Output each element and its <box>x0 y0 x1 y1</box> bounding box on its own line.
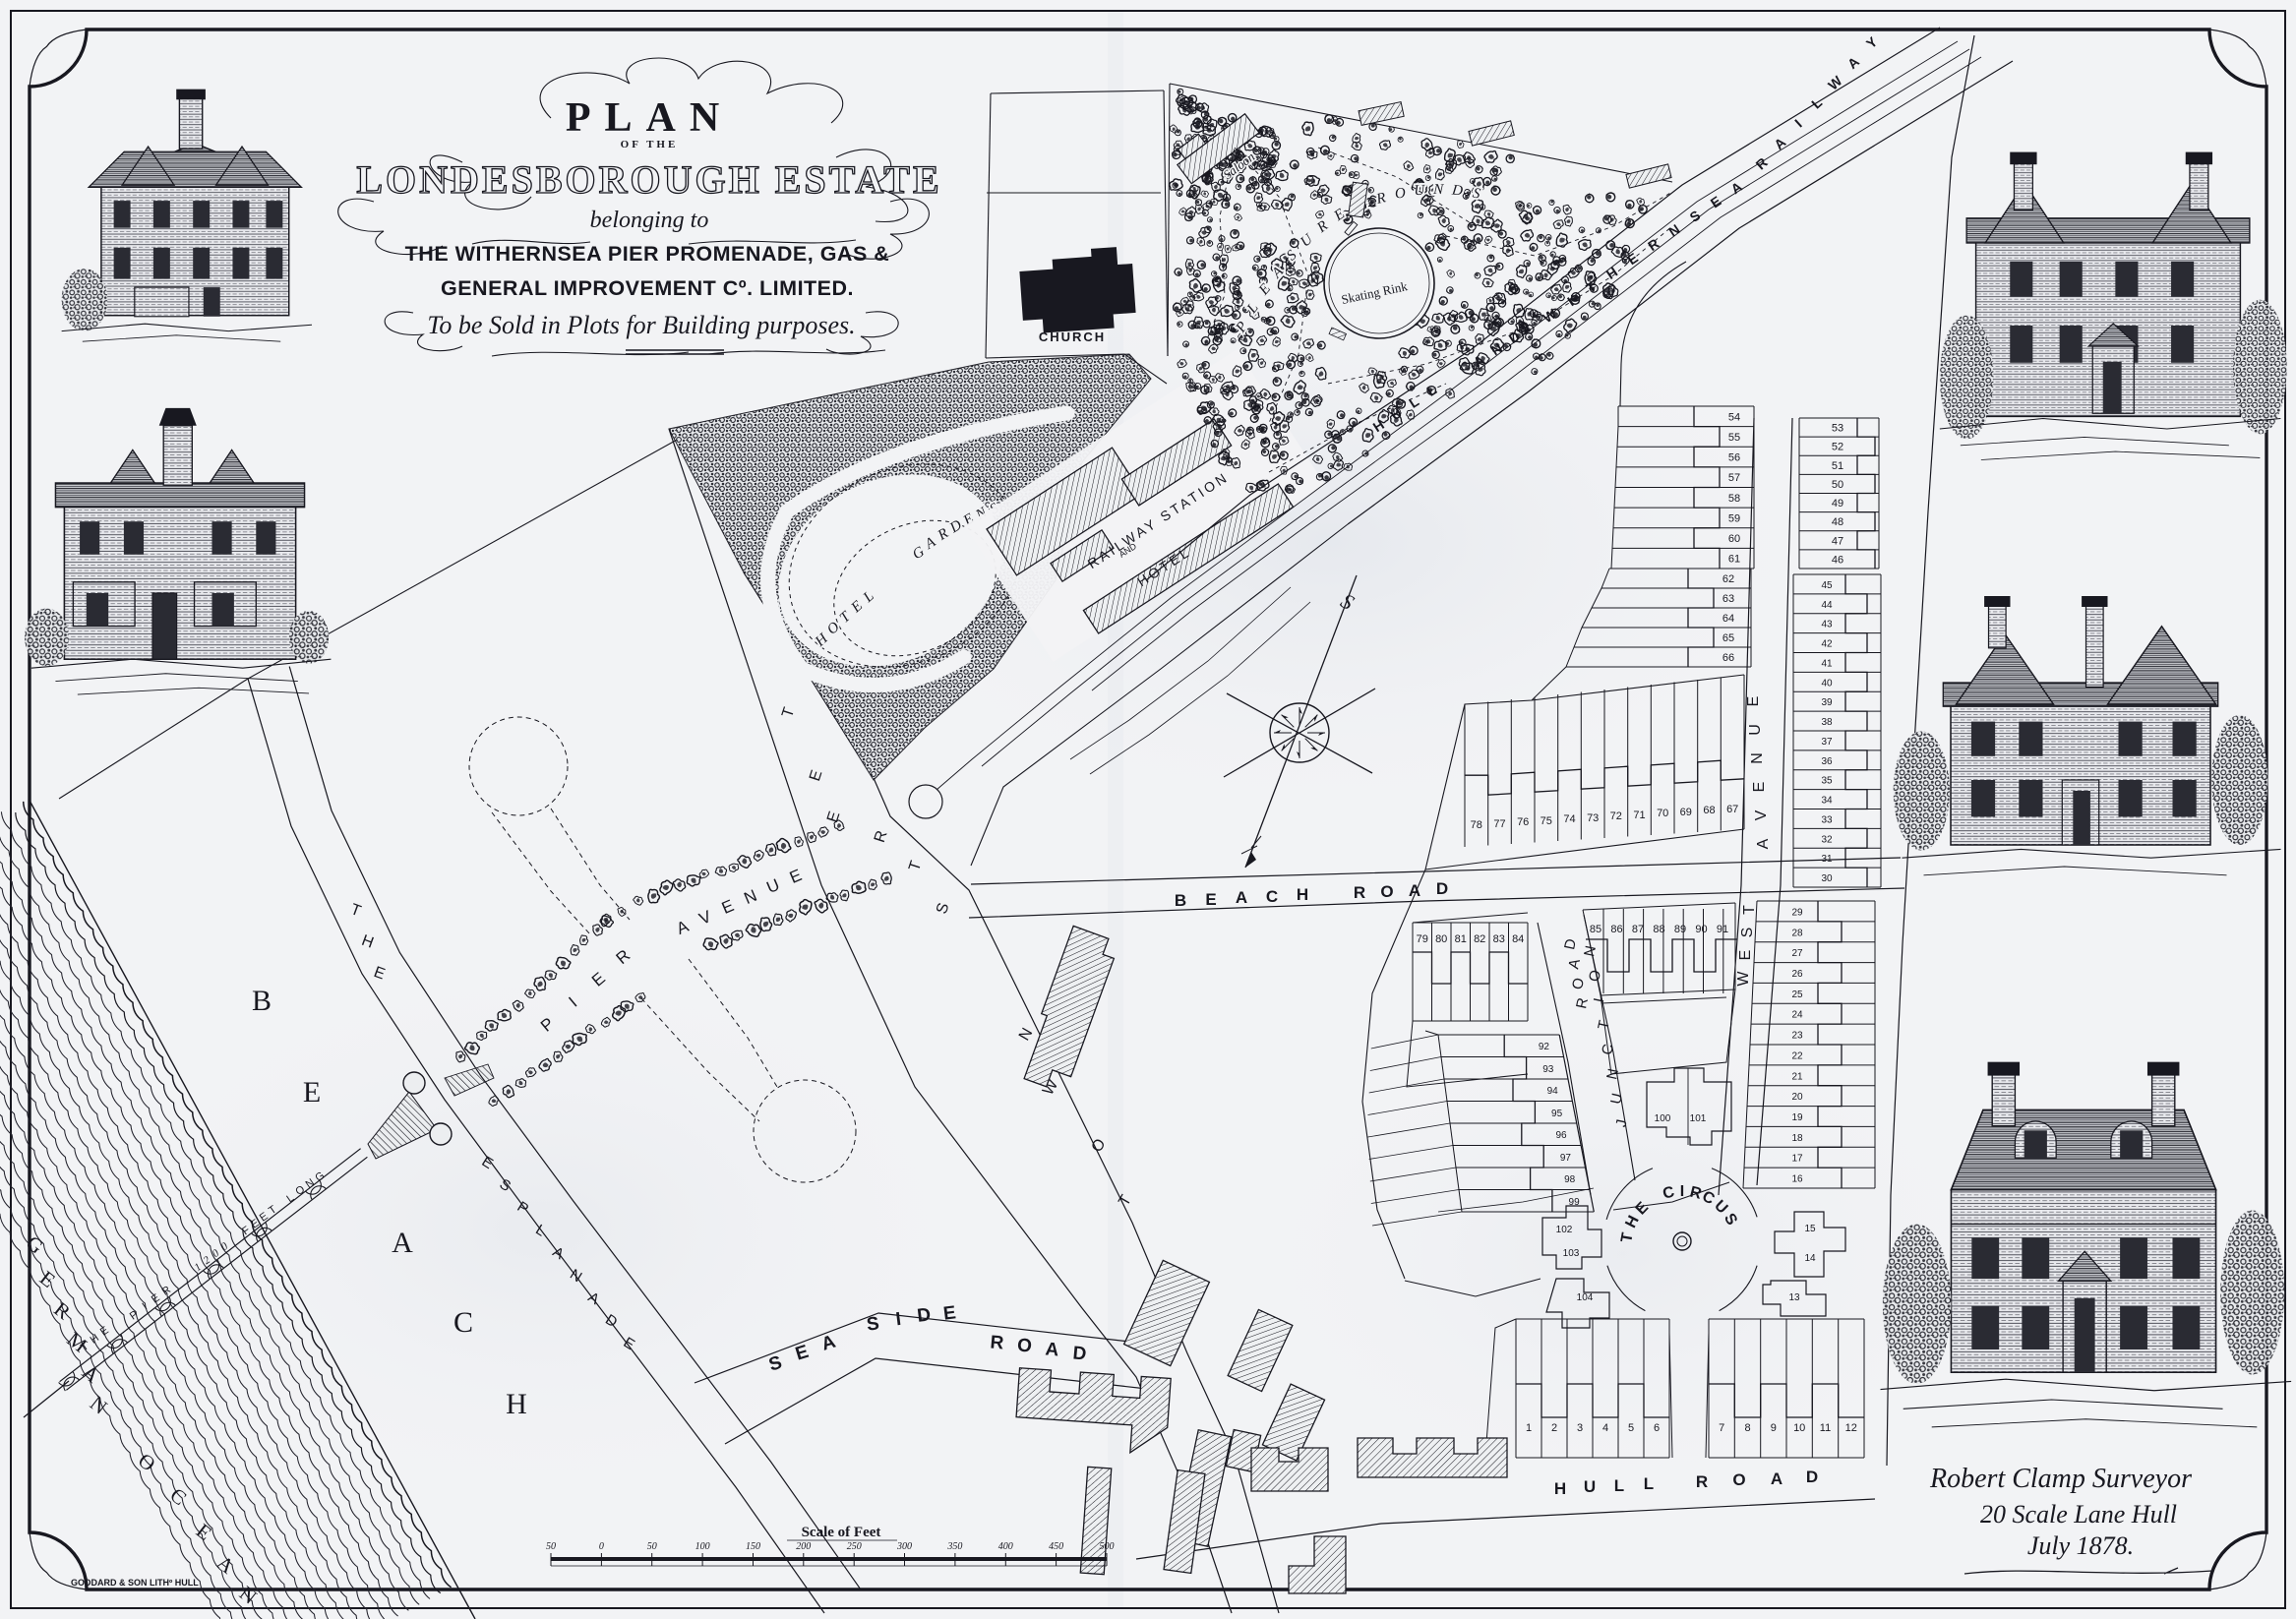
svg-text:20: 20 <box>1791 1092 1803 1103</box>
svg-text:74: 74 <box>1563 813 1575 825</box>
svg-text:91: 91 <box>1717 924 1728 935</box>
svg-text:57: 57 <box>1728 472 1740 484</box>
svg-text:D: D <box>1436 879 1448 898</box>
svg-text:31: 31 <box>1821 854 1833 865</box>
svg-text:N: N <box>1432 182 1445 198</box>
svg-text:67: 67 <box>1726 804 1738 815</box>
svg-text:9: 9 <box>1771 1422 1777 1434</box>
svg-text:L: L <box>1614 1476 1624 1495</box>
svg-text:belonging to: belonging to <box>590 208 709 233</box>
svg-text:E: E <box>1205 890 1216 909</box>
svg-text:94: 94 <box>1547 1086 1559 1097</box>
svg-text:8: 8 <box>1744 1422 1750 1434</box>
svg-text:90: 90 <box>1695 924 1707 935</box>
svg-text:5: 5 <box>1628 1422 1634 1434</box>
svg-text:4: 4 <box>1602 1422 1608 1434</box>
svg-text:A: A <box>1755 838 1772 849</box>
svg-text:A: A <box>1771 1469 1782 1488</box>
svg-text:82: 82 <box>1474 933 1485 945</box>
svg-text:400: 400 <box>998 1541 1013 1552</box>
svg-text:C: C <box>1266 887 1278 906</box>
svg-text:D: D <box>1072 1343 1088 1364</box>
svg-text:87: 87 <box>1632 924 1644 935</box>
svg-text:70: 70 <box>1657 808 1668 819</box>
svg-text:23: 23 <box>1791 1031 1803 1042</box>
svg-text:L: L <box>1644 1474 1654 1493</box>
svg-text:E: E <box>303 1076 321 1109</box>
svg-text:98: 98 <box>1564 1174 1576 1185</box>
svg-text:Robert Clamp Surveyor: Robert Clamp Surveyor <box>1929 1464 2192 1494</box>
svg-text:A: A <box>1236 888 1247 907</box>
svg-text:97: 97 <box>1560 1153 1572 1164</box>
svg-text:44: 44 <box>1821 600 1833 611</box>
svg-text:64: 64 <box>1722 613 1734 625</box>
svg-text:83: 83 <box>1493 933 1505 945</box>
svg-text:103: 103 <box>1563 1248 1580 1259</box>
svg-text:11: 11 <box>1820 1422 1831 1434</box>
svg-text:95: 95 <box>1551 1109 1563 1119</box>
svg-text:86: 86 <box>1610 924 1622 935</box>
svg-text:A: A <box>392 1227 413 1259</box>
svg-text:28: 28 <box>1791 928 1803 938</box>
svg-text:PLAN: PLAN <box>566 95 733 141</box>
svg-text:H: H <box>506 1388 527 1420</box>
svg-text:E: E <box>1745 696 1762 707</box>
svg-text:43: 43 <box>1821 620 1833 630</box>
svg-text:79: 79 <box>1417 933 1428 945</box>
svg-text:25: 25 <box>1791 989 1803 1000</box>
svg-text:50: 50 <box>1832 479 1843 491</box>
svg-text:38: 38 <box>1821 717 1833 728</box>
svg-text:O: O <box>1380 882 1393 901</box>
svg-text:32: 32 <box>1821 834 1833 845</box>
svg-text:H: H <box>1554 1479 1566 1498</box>
svg-text:56: 56 <box>1728 452 1740 464</box>
svg-text:66: 66 <box>1722 652 1734 664</box>
svg-text:I: I <box>1680 1183 1684 1200</box>
svg-text:V: V <box>1753 809 1770 820</box>
svg-text:R: R <box>990 1332 1005 1353</box>
svg-text:88: 88 <box>1653 924 1664 935</box>
svg-text:C: C <box>453 1306 473 1339</box>
svg-text:72: 72 <box>1610 810 1622 822</box>
svg-text:O: O <box>1732 1470 1745 1489</box>
svg-text:65: 65 <box>1722 632 1734 644</box>
svg-text:48: 48 <box>1832 516 1843 528</box>
svg-text:300: 300 <box>896 1541 912 1552</box>
svg-text:B: B <box>252 985 272 1017</box>
svg-text:R: R <box>1354 883 1365 902</box>
svg-text:THE WITHERNSEA PIER PROMENADE,: THE WITHERNSEA PIER PROMENADE, GAS & <box>405 242 890 266</box>
svg-text:81: 81 <box>1455 933 1467 945</box>
svg-text:22: 22 <box>1791 1050 1803 1061</box>
svg-text:96: 96 <box>1555 1130 1567 1141</box>
svg-text:71: 71 <box>1633 809 1645 821</box>
svg-text:46: 46 <box>1832 554 1843 566</box>
svg-text:100: 100 <box>1655 1113 1671 1124</box>
svg-text:68: 68 <box>1703 805 1715 816</box>
svg-text:200: 200 <box>796 1541 811 1552</box>
svg-text:78: 78 <box>1471 819 1482 831</box>
svg-text:37: 37 <box>1821 737 1833 748</box>
svg-text:July 1878.: July 1878. <box>2027 1531 2134 1560</box>
svg-text:50: 50 <box>647 1541 657 1552</box>
svg-text:49: 49 <box>1832 498 1843 510</box>
svg-text:Scale of Feet: Scale of Feet <box>802 1525 881 1540</box>
svg-text:A: A <box>1045 1339 1060 1360</box>
svg-text:63: 63 <box>1722 593 1734 605</box>
svg-text:35: 35 <box>1821 776 1833 787</box>
svg-text:CHURCH: CHURCH <box>1039 330 1106 344</box>
svg-text:B: B <box>1175 891 1186 910</box>
svg-text:61: 61 <box>1728 554 1740 566</box>
svg-text:69: 69 <box>1680 807 1692 818</box>
svg-text:80: 80 <box>1435 933 1447 945</box>
svg-text:7: 7 <box>1719 1422 1724 1434</box>
svg-text:OF THE: OF THE <box>621 139 679 150</box>
svg-text:350: 350 <box>946 1541 962 1552</box>
svg-text:10: 10 <box>1793 1422 1805 1434</box>
svg-text:GENERAL IMPROVEMENT Cº. LIMITE: GENERAL IMPROVEMENT Cº. LIMITED. <box>441 276 854 300</box>
svg-text:D: D <box>1450 182 1464 199</box>
svg-text:27: 27 <box>1791 948 1803 959</box>
svg-text:R: R <box>1696 1472 1708 1491</box>
svg-text:U: U <box>1584 1477 1596 1496</box>
svg-text:6: 6 <box>1654 1422 1660 1434</box>
svg-text:U: U <box>1747 724 1764 736</box>
svg-text:16: 16 <box>1791 1174 1803 1185</box>
svg-text:GODDARD & SON LITHº HULL: GODDARD & SON LITHº HULL <box>71 1578 199 1588</box>
svg-text:1: 1 <box>1526 1422 1532 1434</box>
svg-text:104: 104 <box>1577 1292 1594 1303</box>
svg-text:S: S <box>866 1313 880 1335</box>
svg-text:26: 26 <box>1791 969 1803 980</box>
svg-text:76: 76 <box>1517 816 1529 828</box>
svg-text:60: 60 <box>1728 533 1740 545</box>
svg-text:21: 21 <box>1791 1071 1803 1082</box>
svg-text:E: E <box>942 1302 957 1324</box>
svg-text:13: 13 <box>1788 1292 1800 1303</box>
svg-text:73: 73 <box>1587 812 1599 824</box>
svg-text:18: 18 <box>1791 1133 1803 1144</box>
svg-text:29: 29 <box>1791 907 1803 918</box>
svg-text:O: O <box>1016 1335 1033 1356</box>
svg-text:77: 77 <box>1493 818 1505 830</box>
svg-text:45: 45 <box>1821 580 1833 591</box>
svg-text:85: 85 <box>1590 924 1601 935</box>
svg-text:H: H <box>1297 885 1308 904</box>
svg-text:93: 93 <box>1542 1064 1554 1075</box>
svg-text:50: 50 <box>546 1541 556 1552</box>
svg-text:3: 3 <box>1577 1422 1583 1434</box>
svg-text:30: 30 <box>1821 873 1833 884</box>
svg-text:42: 42 <box>1821 639 1833 650</box>
svg-text:D: D <box>916 1304 932 1327</box>
svg-text:2: 2 <box>1551 1422 1557 1434</box>
svg-text:W: W <box>1735 971 1752 987</box>
svg-text:33: 33 <box>1821 814 1833 825</box>
svg-text:D: D <box>1806 1468 1818 1486</box>
svg-text:55: 55 <box>1728 432 1740 444</box>
svg-text:19: 19 <box>1791 1112 1803 1123</box>
svg-text:92: 92 <box>1539 1042 1550 1052</box>
svg-text:34: 34 <box>1821 796 1833 807</box>
svg-text:E: E <box>1751 782 1768 793</box>
svg-text:12: 12 <box>1845 1422 1857 1434</box>
svg-text:150: 150 <box>746 1541 760 1552</box>
svg-text:20 Scale Lane Hull: 20 Scale Lane Hull <box>1980 1500 2177 1529</box>
svg-text:59: 59 <box>1728 512 1740 524</box>
svg-text:S: S <box>1739 928 1756 938</box>
svg-text:101: 101 <box>1690 1113 1707 1124</box>
svg-text:250: 250 <box>847 1541 862 1552</box>
svg-text:53: 53 <box>1832 423 1843 435</box>
svg-text:47: 47 <box>1832 535 1843 547</box>
svg-text:100: 100 <box>695 1541 710 1552</box>
svg-text:15: 15 <box>1804 1224 1816 1234</box>
svg-text:T: T <box>1741 905 1758 915</box>
svg-text:0: 0 <box>599 1541 604 1552</box>
svg-text:LONDESBOROUGH ESTATE: LONDESBOROUGH ESTATE <box>356 157 941 202</box>
svg-text:58: 58 <box>1728 493 1740 505</box>
svg-text:N: N <box>1749 752 1766 764</box>
svg-text:To be Sold in Plots for Buildi: To be Sold in Plots for Building purpose… <box>427 311 855 339</box>
svg-text:17: 17 <box>1791 1154 1803 1165</box>
svg-text:450: 450 <box>1049 1541 1063 1552</box>
svg-text:U: U <box>1414 183 1426 200</box>
svg-text:102: 102 <box>1556 1225 1573 1235</box>
svg-text:40: 40 <box>1821 678 1833 689</box>
svg-text:41: 41 <box>1821 658 1833 669</box>
svg-text:84: 84 <box>1512 933 1524 945</box>
svg-text:24: 24 <box>1791 1010 1803 1021</box>
svg-text:36: 36 <box>1821 756 1833 767</box>
svg-text:51: 51 <box>1832 460 1843 472</box>
svg-text:14: 14 <box>1804 1253 1816 1264</box>
svg-text:54: 54 <box>1728 411 1740 423</box>
svg-text:62: 62 <box>1722 573 1734 585</box>
svg-text:89: 89 <box>1674 924 1686 935</box>
svg-text:52: 52 <box>1832 442 1843 453</box>
svg-text:500: 500 <box>1100 1541 1115 1552</box>
svg-text:75: 75 <box>1541 815 1552 827</box>
svg-text:39: 39 <box>1821 697 1833 708</box>
svg-text:E: E <box>1737 950 1754 961</box>
